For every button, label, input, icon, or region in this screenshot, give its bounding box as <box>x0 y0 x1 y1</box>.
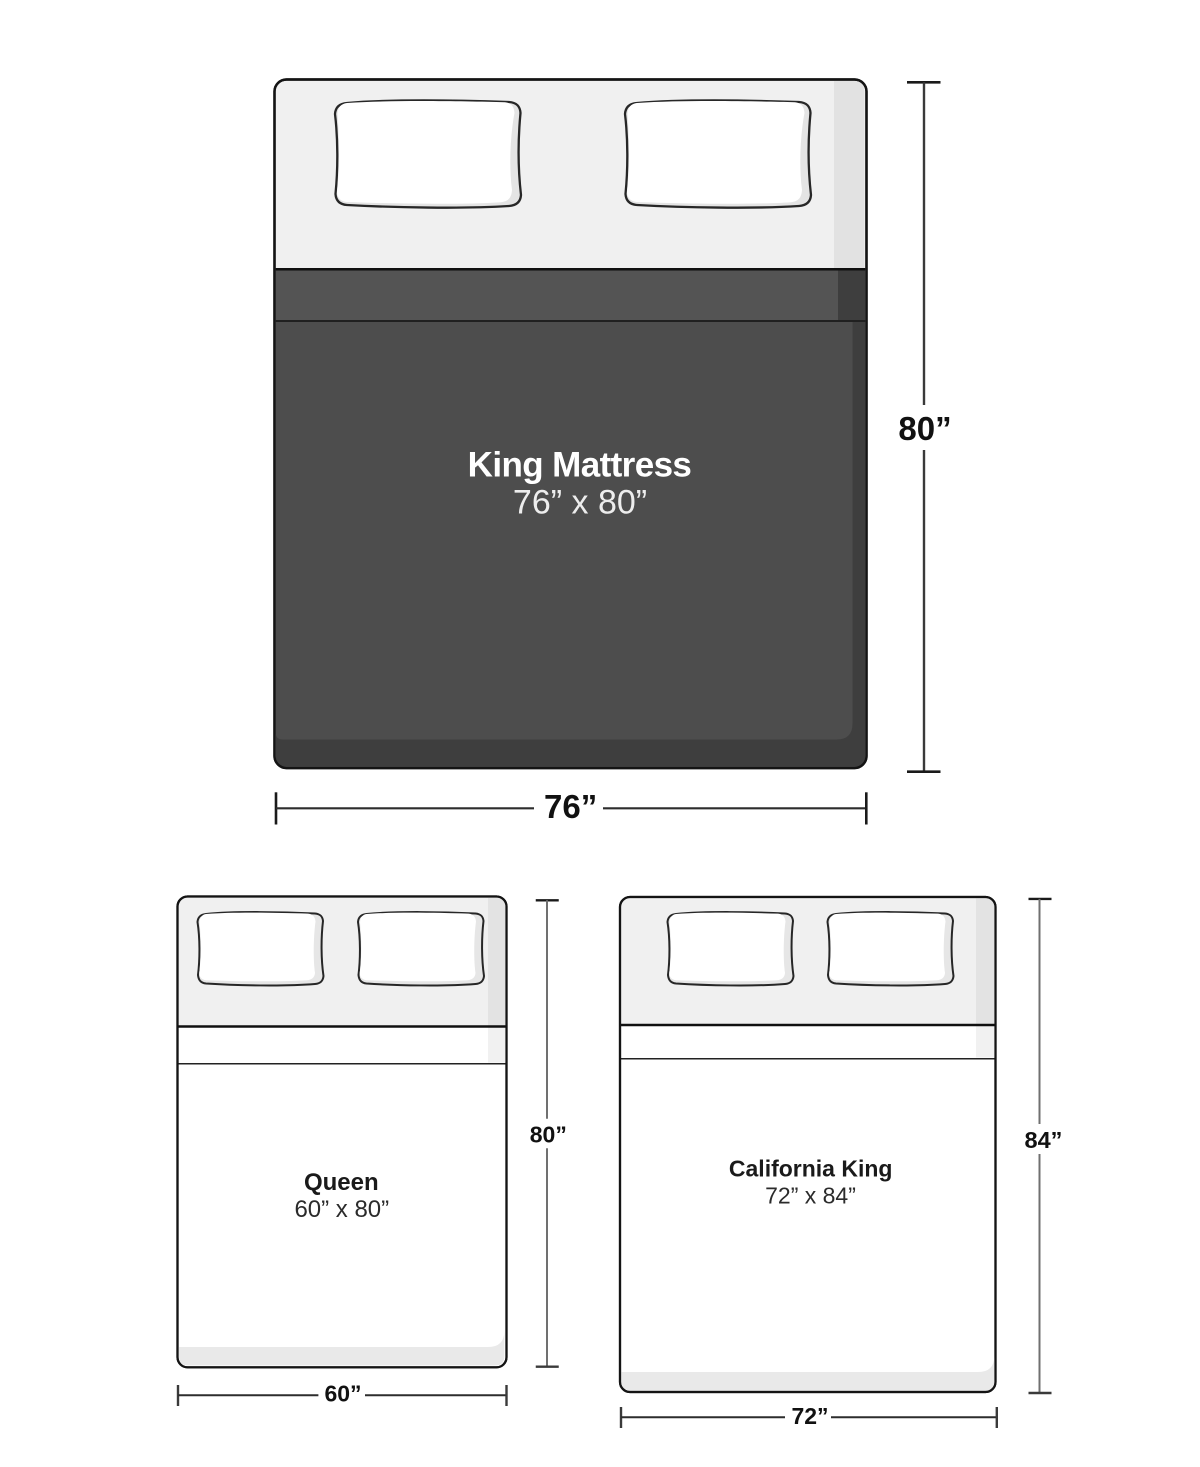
svg-text:80”: 80” <box>530 1121 567 1147</box>
svg-text:76” x 80”: 76” x 80” <box>513 484 647 522</box>
svg-text:72” x 84”: 72” x 84” <box>765 1182 856 1208</box>
svg-text:80”: 80” <box>898 410 951 447</box>
svg-text:72”: 72” <box>791 1403 828 1429</box>
svg-text:84”: 84” <box>1025 1127 1063 1153</box>
svg-text:King Mattress: King Mattress <box>468 446 692 485</box>
svg-text:76”: 76” <box>544 788 597 825</box>
svg-text:California King: California King <box>729 1156 893 1182</box>
svg-text:60”: 60” <box>324 1381 361 1407</box>
svg-text:Queen: Queen <box>304 1169 379 1196</box>
svg-text:60” x 80”: 60” x 80” <box>294 1196 389 1223</box>
